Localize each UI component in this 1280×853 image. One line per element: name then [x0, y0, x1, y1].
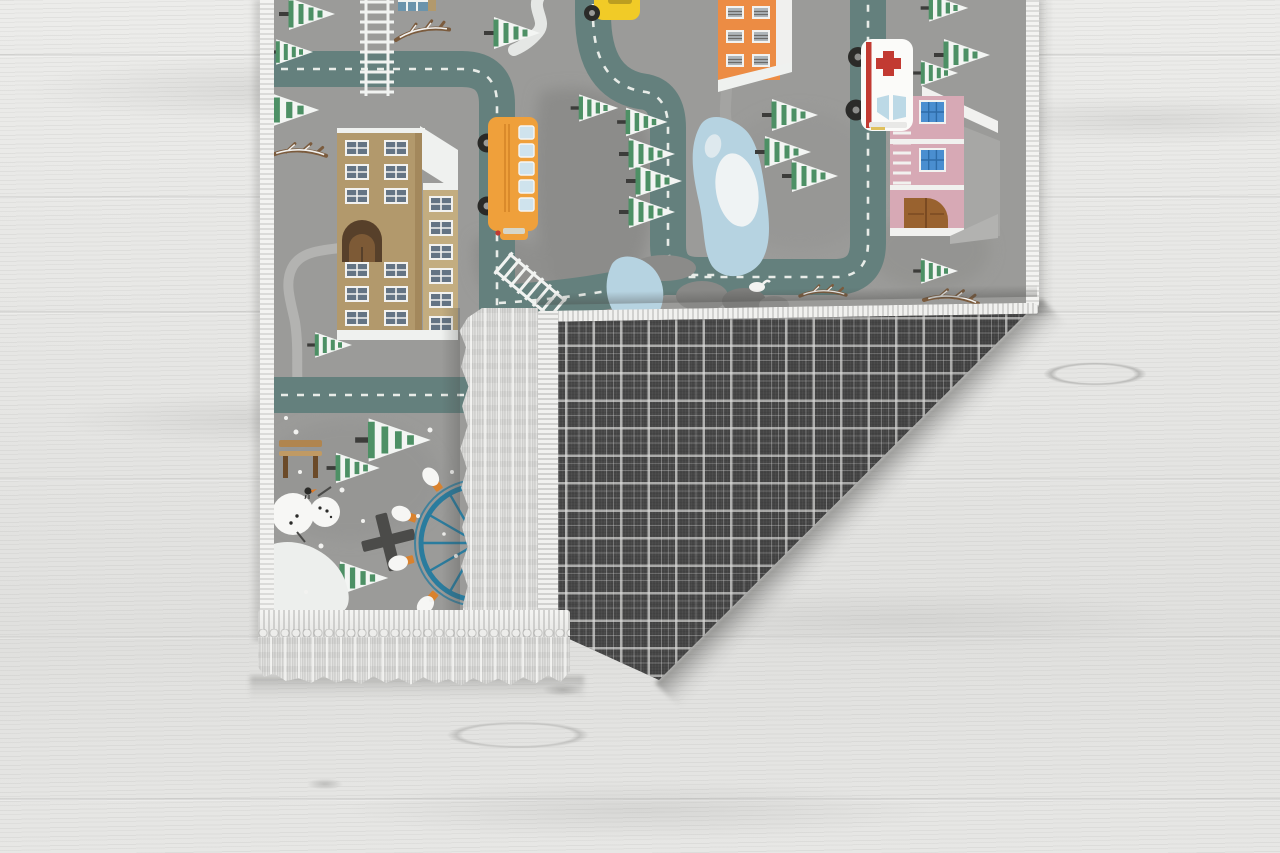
rug-binding-left — [260, 0, 275, 640]
fringe-loops — [258, 629, 570, 638]
bottom-fringe — [258, 610, 570, 686]
flap-binding-left — [536, 311, 558, 635]
flap-fringe-shadow-on-print — [438, 308, 460, 635]
flap-fringe — [458, 308, 538, 635]
fringe-tassels — [258, 637, 570, 686]
rug-left-shadow — [246, 0, 261, 642]
rug-binding-right — [1025, 0, 1039, 312]
fringe-binding — [258, 610, 570, 637]
rug-right-shadow — [1037, 0, 1053, 315]
product-photo-scene — [0, 0, 1280, 853]
